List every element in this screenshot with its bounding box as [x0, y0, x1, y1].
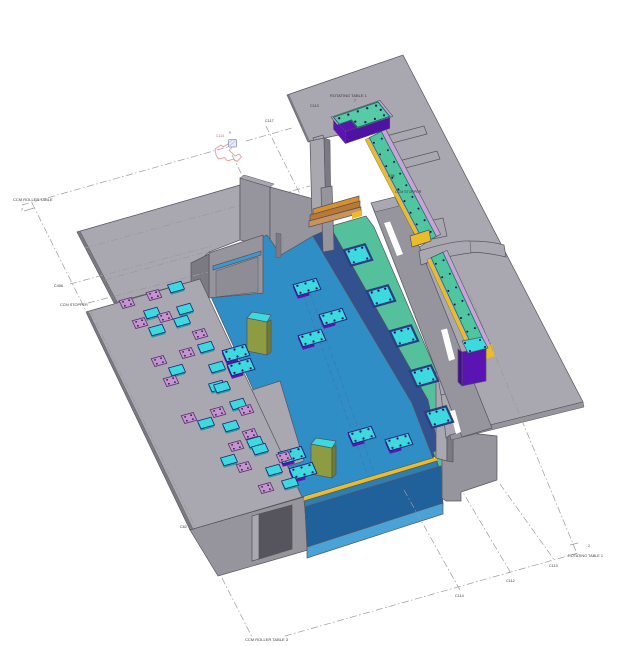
- svg-text:7: 7: [21, 208, 23, 212]
- svg-text:C62: C62: [180, 525, 187, 529]
- svg-text:C98: C98: [388, 174, 395, 178]
- svg-text:CCM ROLLER TABLE 3: CCM ROLLER TABLE 3: [245, 637, 289, 642]
- svg-text:C114: C114: [216, 134, 224, 138]
- svg-text:C114: C114: [455, 594, 464, 598]
- svg-text:ROTATING TABLE 1: ROTATING TABLE 1: [568, 554, 603, 558]
- svg-text:C456: C456: [54, 284, 63, 288]
- svg-text:B: B: [229, 131, 231, 135]
- svg-text:7: 7: [354, 99, 356, 103]
- svg-text:CCM STOPPER: CCM STOPPER: [60, 303, 88, 307]
- svg-text:C113: C113: [310, 104, 319, 108]
- svg-text:CCM ROLLER TABLE: CCM ROLLER TABLE: [13, 197, 53, 202]
- svg-text:ROTATING TABLE 1: ROTATING TABLE 1: [330, 93, 368, 98]
- svg-text:C117: C117: [265, 119, 274, 123]
- svg-text:2: 2: [588, 544, 590, 548]
- svg-text:CCM STOPPER: CCM STOPPER: [395, 190, 422, 194]
- svg-text:C113: C113: [549, 564, 558, 568]
- svg-text:C112: C112: [506, 579, 515, 583]
